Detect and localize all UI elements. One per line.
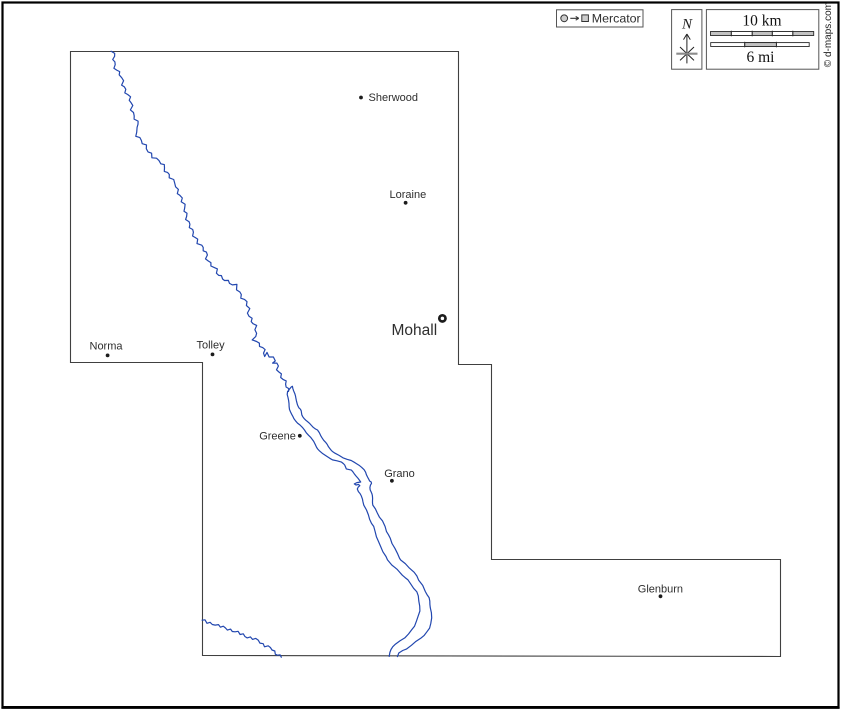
svg-text:Tolley: Tolley [197, 340, 226, 352]
svg-text:© d-maps.com: © d-maps.com [823, 2, 834, 67]
svg-text:Mohall: Mohall [392, 322, 438, 339]
svg-text:Greene: Greene [259, 430, 296, 442]
svg-text:10 km: 10 km [742, 12, 781, 29]
svg-text:N: N [681, 17, 693, 33]
svg-text:Glenburn: Glenburn [638, 583, 683, 595]
svg-text:Mercator: Mercator [592, 12, 641, 26]
svg-text:Grano: Grano [384, 468, 415, 480]
svg-text:Sherwood: Sherwood [369, 92, 419, 104]
svg-text:Loraine: Loraine [390, 189, 427, 201]
svg-text:Norma: Norma [90, 341, 124, 353]
svg-text:6 mi: 6 mi [747, 49, 776, 66]
